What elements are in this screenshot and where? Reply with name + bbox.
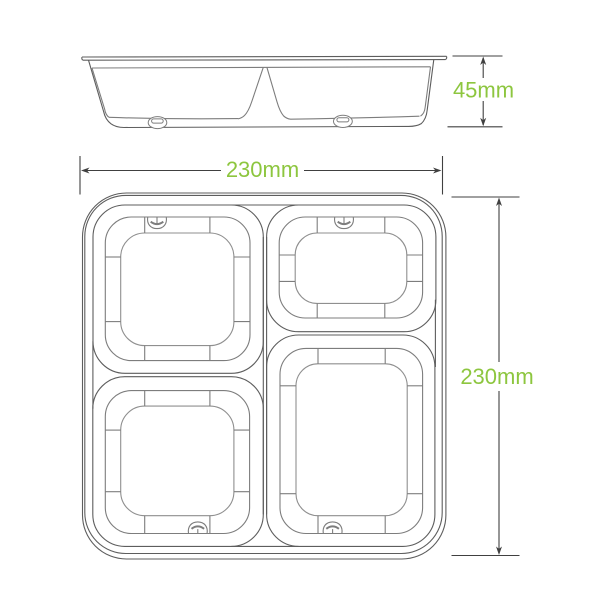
svg-text:45mm: 45mm bbox=[453, 78, 514, 103]
svg-text:230mm: 230mm bbox=[460, 364, 533, 389]
svg-text:230mm: 230mm bbox=[226, 157, 299, 182]
